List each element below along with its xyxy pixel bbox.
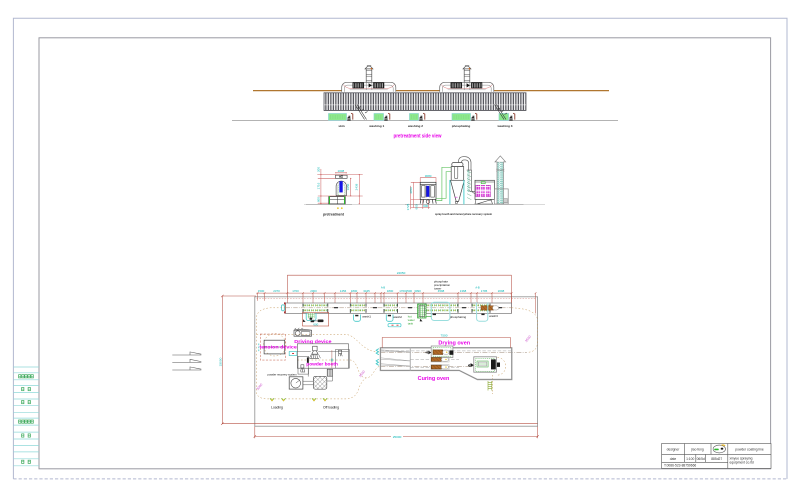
svg-text:Drying oven: Drying oven bbox=[438, 341, 470, 347]
svg-text:jiao feng: jiao feng bbox=[690, 447, 704, 451]
svg-text:skin: skin bbox=[312, 319, 318, 323]
svg-text:1:100: 1:100 bbox=[686, 457, 694, 461]
svg-text:3080: 3080 bbox=[425, 174, 432, 178]
svg-text:pretreatment side view: pretreatment side view bbox=[394, 133, 443, 139]
svg-text:1500: 1500 bbox=[406, 289, 413, 293]
svg-text:designer: designer bbox=[667, 447, 681, 451]
svg-text:tension device: tension device bbox=[260, 345, 298, 350]
svg-text:1456: 1456 bbox=[340, 289, 347, 293]
svg-text:1950: 1950 bbox=[346, 183, 350, 190]
svg-text:tank: tank bbox=[408, 321, 414, 325]
svg-text:spray booth and monocyclone re: spray booth and monocyclone recovery sys… bbox=[435, 212, 492, 216]
svg-text:2370: 2370 bbox=[273, 289, 280, 293]
svg-text:washing 3: washing 3 bbox=[497, 124, 513, 128]
svg-text:24050: 24050 bbox=[397, 271, 406, 275]
svg-text:skin: skin bbox=[338, 124, 344, 128]
svg-text:wash2: wash2 bbox=[393, 315, 402, 319]
svg-text:1700: 1700 bbox=[292, 289, 299, 293]
svg-text:1800: 1800 bbox=[387, 289, 394, 293]
svg-text:4050: 4050 bbox=[409, 187, 413, 194]
svg-text:1716: 1716 bbox=[317, 182, 321, 189]
svg-text:powder booth: powder booth bbox=[306, 362, 338, 367]
svg-text:600: 600 bbox=[313, 323, 318, 327]
svg-text:date: date bbox=[670, 457, 677, 461]
svg-text:15000: 15000 bbox=[219, 357, 223, 366]
svg-text:7500: 7500 bbox=[441, 333, 448, 337]
svg-text:equipment co.ltd: equipment co.ltd bbox=[730, 461, 754, 465]
svg-text:powder coating line: powder coating line bbox=[735, 447, 764, 451]
svg-text:1500: 1500 bbox=[258, 289, 265, 293]
svg-text:600: 600 bbox=[423, 204, 428, 208]
svg-text:1795: 1795 bbox=[481, 289, 488, 293]
svg-text:1800: 1800 bbox=[351, 289, 358, 293]
svg-text:washing 1: washing 1 bbox=[368, 124, 384, 128]
svg-text:2098: 2098 bbox=[498, 289, 505, 293]
svg-text:2438: 2438 bbox=[355, 183, 359, 190]
svg-text:A-B: A-B bbox=[381, 286, 386, 290]
svg-text:tower: tower bbox=[434, 287, 441, 291]
svg-text:A-B: A-B bbox=[475, 286, 480, 290]
svg-text:wash3: wash3 bbox=[489, 314, 498, 318]
svg-text:3090: 3090 bbox=[414, 289, 421, 293]
svg-text:600: 600 bbox=[317, 197, 321, 202]
svg-text:Driving device: Driving device bbox=[294, 339, 332, 344]
svg-text:1368: 1368 bbox=[460, 289, 467, 293]
svg-text:Loading: Loading bbox=[271, 406, 283, 410]
svg-text:885d27: 885d27 bbox=[711, 457, 722, 461]
svg-text:3445: 3445 bbox=[363, 289, 370, 293]
svg-text:pretreatment: pretreatment bbox=[323, 213, 345, 217]
svg-text:1725: 1725 bbox=[406, 203, 410, 210]
svg-text:phosphating: phosphating bbox=[450, 315, 467, 319]
svg-text:Curing oven: Curing oven bbox=[418, 376, 450, 382]
svg-text:wash1: wash1 bbox=[362, 314, 371, 318]
svg-text:2000: 2000 bbox=[310, 289, 317, 293]
svg-text:Off loading: Off loading bbox=[323, 406, 339, 410]
svg-text:T:0086-523-88759666: T:0086-523-88759666 bbox=[664, 464, 696, 468]
svg-text:600: 600 bbox=[414, 204, 418, 209]
svg-text:washing 2: washing 2 bbox=[407, 124, 423, 128]
svg-text:06/5d: 06/5d bbox=[697, 457, 705, 461]
svg-text:1008: 1008 bbox=[337, 169, 344, 173]
svg-text:200: 200 bbox=[317, 167, 321, 172]
svg-text:phosphating: phosphating bbox=[452, 124, 471, 128]
svg-text:powder recovery system: powder recovery system bbox=[268, 372, 298, 376]
svg-text:25000: 25000 bbox=[393, 435, 402, 439]
